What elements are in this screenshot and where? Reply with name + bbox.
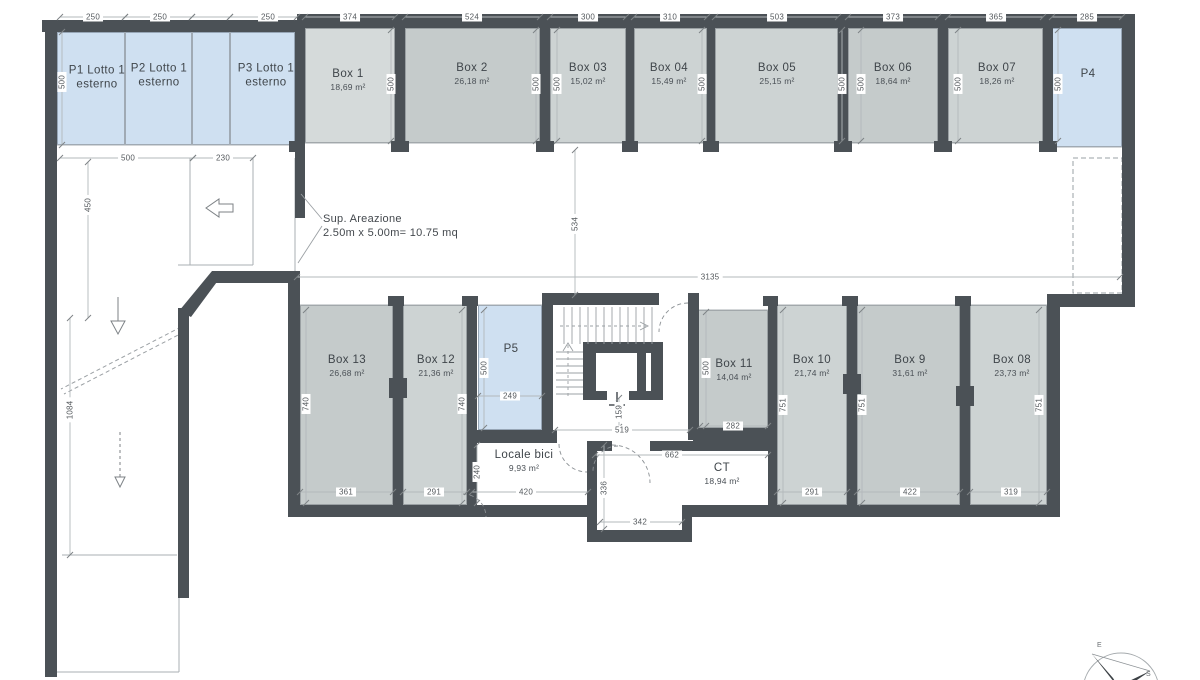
room-name-sub: esterno bbox=[69, 78, 125, 92]
dim-label-18-500: 500 bbox=[532, 74, 541, 94]
dim-label-13-500: 500 bbox=[118, 154, 138, 163]
dim-label-39-662: 662 bbox=[662, 451, 682, 460]
dim-label-35-519: 519 bbox=[612, 426, 632, 435]
dim-label-8-503: 503 bbox=[767, 13, 787, 22]
room-area: 31,61 m² bbox=[892, 368, 927, 378]
dim-label-0-250: 250 bbox=[83, 13, 103, 22]
dim-label-23-500: 500 bbox=[954, 74, 963, 94]
room-area: 18,26 m² bbox=[978, 76, 1016, 86]
aeration-note: Sup. Areazione 2.50m x 5.00m= 10.75 mq bbox=[323, 212, 458, 241]
room-label-box-05: Box 0525,15 m² bbox=[758, 62, 796, 86]
dim-label-34-420: 420 bbox=[516, 488, 536, 497]
dim-label-36-159: 159 bbox=[615, 402, 624, 422]
dim-label-24-500: 500 bbox=[1054, 74, 1063, 94]
dim-label-41-342: 342 bbox=[630, 518, 650, 527]
room-name: Box 07 bbox=[978, 62, 1016, 76]
dim-label-17-500: 500 bbox=[387, 74, 396, 94]
dim-label-15-450: 450 bbox=[84, 195, 93, 215]
room-label-box-03: Box 0315,02 m² bbox=[569, 62, 607, 86]
dim-label-28-740: 740 bbox=[458, 394, 467, 414]
room-name: Box 03 bbox=[569, 62, 607, 76]
room-name: P4 bbox=[1081, 68, 1096, 82]
room-area: 23,73 m² bbox=[993, 368, 1031, 378]
dim-label-44-319: 319 bbox=[1001, 488, 1021, 497]
aeration-note-line1: Sup. Areazione bbox=[323, 212, 458, 226]
dim-label-25-534: 534 bbox=[571, 214, 580, 234]
dim-label-7-310: 310 bbox=[660, 13, 680, 22]
room-area: 14,04 m² bbox=[715, 372, 752, 382]
room-name-sub: esterno bbox=[238, 76, 294, 90]
room-label-locale-bici: Locale bici9,93 m² bbox=[495, 449, 554, 473]
room-name: P1 Lotto 1 bbox=[69, 64, 125, 78]
room-label-box-1: Box 118,69 m² bbox=[330, 68, 365, 92]
room-area: 18,94 m² bbox=[704, 476, 739, 486]
dim-label-16-1084: 1084 bbox=[66, 398, 75, 423]
aeration-note-line2: 2.50m x 5.00m= 10.75 mq bbox=[323, 226, 458, 240]
dim-label-21-500: 500 bbox=[838, 74, 847, 94]
room-name: Box 2 bbox=[454, 62, 489, 76]
dim-label-32-291: 291 bbox=[424, 488, 444, 497]
room-area: 26,68 m² bbox=[328, 368, 366, 378]
room-label-p3: P3 Lotto 1esterno bbox=[238, 62, 294, 89]
room-area: 18,64 m² bbox=[874, 76, 912, 86]
room-label-p2: P2 Lotto 1esterno bbox=[131, 62, 187, 89]
dim-label-26-3135: 3135 bbox=[698, 273, 723, 282]
room-label-box-11: Box 1114,04 m² bbox=[715, 358, 752, 382]
room-name: Box 06 bbox=[874, 62, 912, 76]
room-label-box-13: Box 1326,68 m² bbox=[328, 354, 366, 378]
room-area: 15,49 m² bbox=[650, 76, 688, 86]
room-area: 18,69 m² bbox=[330, 82, 365, 92]
dim-label-47-751: 751 bbox=[1035, 395, 1044, 415]
room-name: Box 1 bbox=[330, 68, 365, 82]
dim-label-22-500: 500 bbox=[857, 74, 866, 94]
room-label-box-12: Box 1221,36 m² bbox=[417, 354, 455, 378]
room-name: Box 08 bbox=[993, 354, 1031, 368]
dim-label-4-374: 374 bbox=[340, 13, 360, 22]
room-name: Box 05 bbox=[758, 62, 796, 76]
room-name: P2 Lotto 1 bbox=[131, 62, 187, 76]
dim-label-42-291: 291 bbox=[802, 488, 822, 497]
room-label-box-06: Box 0618,64 m² bbox=[874, 62, 912, 86]
dim-label-43-422: 422 bbox=[900, 488, 920, 497]
room-label-p5: P5 bbox=[504, 343, 519, 357]
labels-layer: Sup. Areazione 2.50m x 5.00m= 10.75 mq E… bbox=[0, 0, 1200, 680]
floor-plan: Sup. Areazione 2.50m x 5.00m= 10.75 mq E… bbox=[0, 0, 1200, 680]
compass-east-label: E bbox=[1097, 642, 1102, 649]
dim-label-40-336: 336 bbox=[600, 478, 609, 498]
room-label-box-10: Box 1021,74 m² bbox=[793, 354, 831, 378]
room-area: 21,74 m² bbox=[793, 368, 831, 378]
room-label-box-07: Box 0718,26 m² bbox=[978, 62, 1016, 86]
room-label-ct: CT18,94 m² bbox=[704, 462, 739, 486]
dim-label-9-373: 373 bbox=[883, 13, 903, 22]
dim-label-27-740: 740 bbox=[302, 394, 311, 414]
dim-label-5-524: 524 bbox=[462, 13, 482, 22]
dim-label-37-282: 282 bbox=[723, 422, 743, 431]
dim-label-14-230: 230 bbox=[213, 154, 233, 163]
compass-south-label: S bbox=[1146, 671, 1151, 678]
room-label-box-08: Box 0823,73 m² bbox=[993, 354, 1031, 378]
room-area: 21,36 m² bbox=[417, 368, 455, 378]
dim-label-33-240: 240 bbox=[473, 462, 482, 482]
dim-label-38-500: 500 bbox=[702, 358, 711, 378]
room-area: 26,18 m² bbox=[454, 76, 489, 86]
dim-label-29-500: 500 bbox=[480, 358, 489, 378]
room-name: Box 12 bbox=[417, 354, 455, 368]
room-label-box-2: Box 226,18 m² bbox=[454, 62, 489, 86]
room-label-box-9: Box 931,61 m² bbox=[892, 354, 927, 378]
dim-label-45-751: 751 bbox=[779, 395, 788, 415]
room-name: Locale bici bbox=[495, 449, 554, 463]
room-label-p4: P4 bbox=[1081, 68, 1096, 82]
dim-label-11-285: 285 bbox=[1077, 13, 1097, 22]
room-area: 25,15 m² bbox=[758, 76, 796, 86]
dim-label-12-500: 500 bbox=[58, 72, 67, 92]
room-label-box-04: Box 0415,49 m² bbox=[650, 62, 688, 86]
dim-label-10-365: 365 bbox=[986, 13, 1006, 22]
dim-label-19-500: 500 bbox=[553, 74, 562, 94]
room-name: Box 13 bbox=[328, 354, 366, 368]
room-name: Box 10 bbox=[793, 354, 831, 368]
room-area: 15,02 m² bbox=[569, 76, 607, 86]
room-area: 9,93 m² bbox=[495, 463, 554, 473]
dim-label-31-361: 361 bbox=[336, 488, 356, 497]
dim-label-46-751: 751 bbox=[858, 395, 867, 415]
room-name: P3 Lotto 1 bbox=[238, 62, 294, 76]
dim-label-20-500: 500 bbox=[698, 74, 707, 94]
dim-label-3-250: 250 bbox=[258, 13, 278, 22]
room-name-sub: esterno bbox=[131, 76, 187, 90]
room-name: CT bbox=[704, 462, 739, 476]
room-label-p1: P1 Lotto 1esterno bbox=[69, 64, 125, 91]
room-name: Box 04 bbox=[650, 62, 688, 76]
room-name: Box 9 bbox=[892, 354, 927, 368]
room-name: P5 bbox=[504, 343, 519, 357]
dim-label-1-250: 250 bbox=[150, 13, 170, 22]
dim-label-30-249: 249 bbox=[500, 392, 520, 401]
room-name: Box 11 bbox=[715, 358, 752, 372]
dim-label-6-300: 300 bbox=[578, 13, 598, 22]
